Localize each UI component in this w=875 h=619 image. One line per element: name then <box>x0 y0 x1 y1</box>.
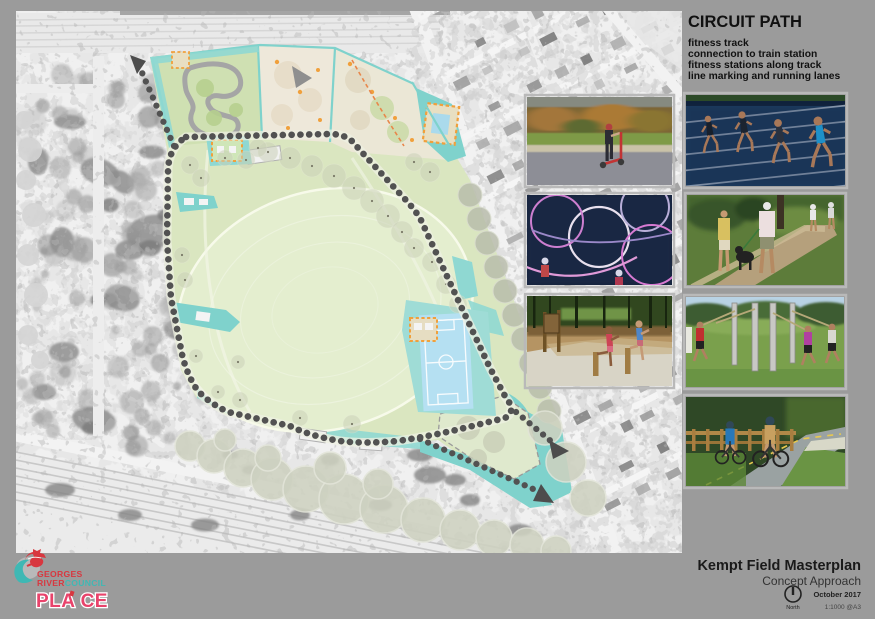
svg-text:CIRCUIT PATH: CIRCUIT PATH <box>688 13 802 31</box>
svg-text:fitness stations along track: fitness stations along track <box>688 60 822 71</box>
svg-text:October 2017: October 2017 <box>813 590 861 599</box>
svg-text:RIVERCOUNCIL: RIVERCOUNCIL <box>37 578 106 588</box>
svg-text:connection to train station: connection to train station <box>688 49 817 60</box>
svg-text:North: North <box>786 605 799 611</box>
svg-text:fitness track: fitness track <box>688 38 749 49</box>
svg-text:line marking and running lanes: line marking and running lanes <box>688 71 840 82</box>
svg-text:Concept Approach: Concept Approach <box>762 574 861 588</box>
svg-text:Kempt Field Masterplan: Kempt Field Masterplan <box>697 558 861 574</box>
svg-text:1:1000 @A3: 1:1000 @A3 <box>825 604 862 611</box>
